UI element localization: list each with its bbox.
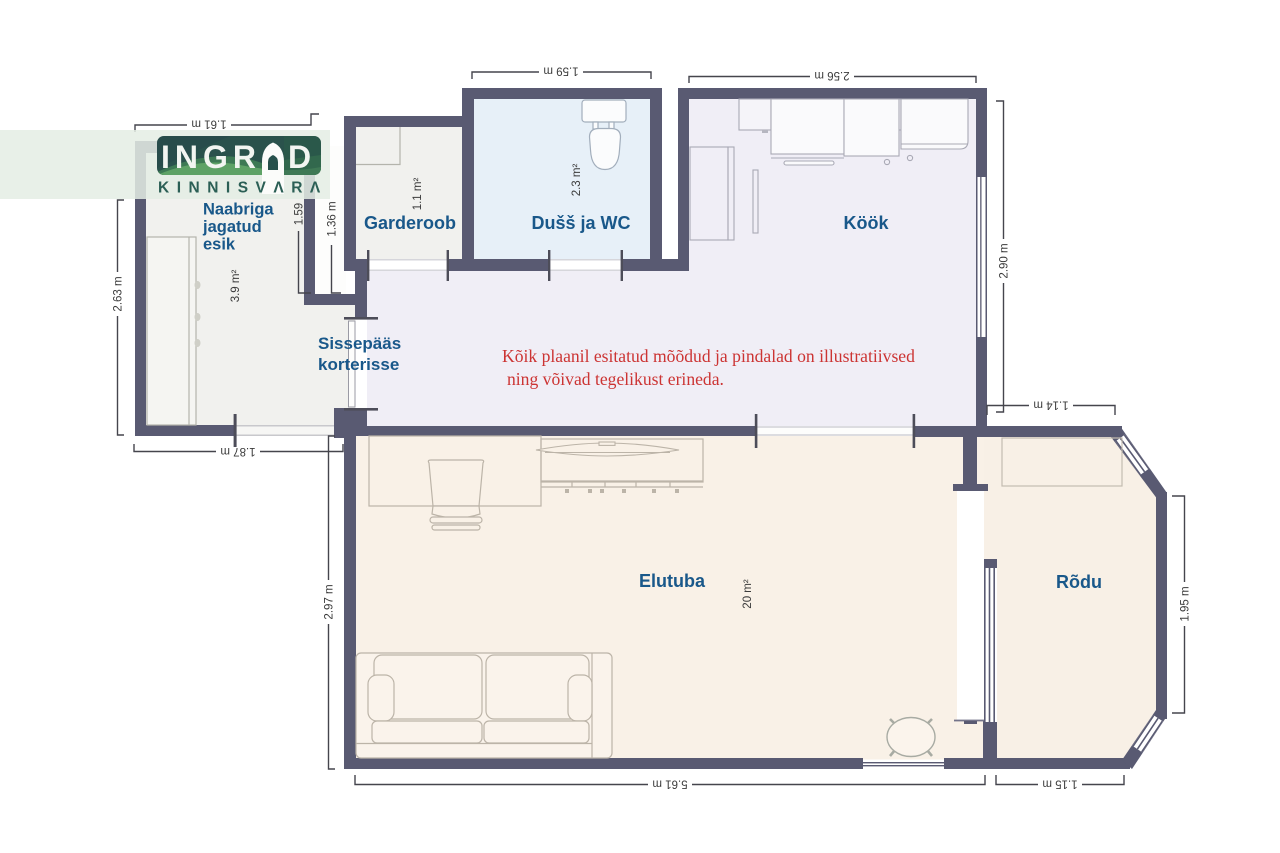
svg-text:korterisse: korterisse xyxy=(318,355,399,374)
svg-text:Köök: Köök xyxy=(844,213,890,233)
svg-text:2.63 m: 2.63 m xyxy=(113,276,125,311)
svg-text:2.3 m²: 2.3 m² xyxy=(571,164,583,197)
svg-text:5.61 m: 5.61 m xyxy=(652,778,687,790)
svg-text:1.1 m²: 1.1 m² xyxy=(412,178,424,211)
svg-text:1.59 m: 1.59 m xyxy=(543,65,578,77)
svg-text:Kõik plaanil esitatud mõõdud j: Kõik plaanil esitatud mõõdud ja pindalad… xyxy=(502,346,915,366)
svg-text:Dušš ja WC: Dušš ja WC xyxy=(531,213,630,233)
svg-text:ning võivad tegelikust erineda: ning võivad tegelikust erineda. xyxy=(507,369,724,389)
svg-text:esik: esik xyxy=(203,236,236,254)
svg-text:1.87 m: 1.87 m xyxy=(220,445,255,457)
svg-text:1.15 m: 1.15 m xyxy=(1042,778,1077,790)
svg-text:1.61 m: 1.61 m xyxy=(191,118,226,130)
svg-text:3.9 m²: 3.9 m² xyxy=(230,270,242,303)
svg-text:1.95 m: 1.95 m xyxy=(1180,586,1192,621)
svg-text:1.14 m: 1.14 m xyxy=(1033,399,1068,411)
svg-text:Garderoob: Garderoob xyxy=(364,213,456,233)
svg-text:1.36 m: 1.36 m xyxy=(327,201,339,236)
svg-text:1.59: 1.59 xyxy=(294,203,306,225)
svg-text:jagatud: jagatud xyxy=(202,218,262,236)
svg-text:2.90 m: 2.90 m xyxy=(999,243,1011,278)
svg-text:Elutuba: Elutuba xyxy=(639,571,706,591)
svg-text:INGR: INGR xyxy=(161,139,261,175)
svg-text:2.97 m: 2.97 m xyxy=(324,584,336,619)
svg-text:KINNISVΛRΛ: KINNISVΛRΛ xyxy=(158,180,328,197)
svg-text:D: D xyxy=(288,139,311,175)
svg-text:Naabriga: Naabriga xyxy=(203,201,274,219)
svg-text:Rõdu: Rõdu xyxy=(1056,572,1102,592)
svg-text:2.56 m: 2.56 m xyxy=(814,69,849,81)
svg-text:Sissepääs: Sissepääs xyxy=(318,334,401,353)
svg-text:20 m²: 20 m² xyxy=(742,579,754,609)
